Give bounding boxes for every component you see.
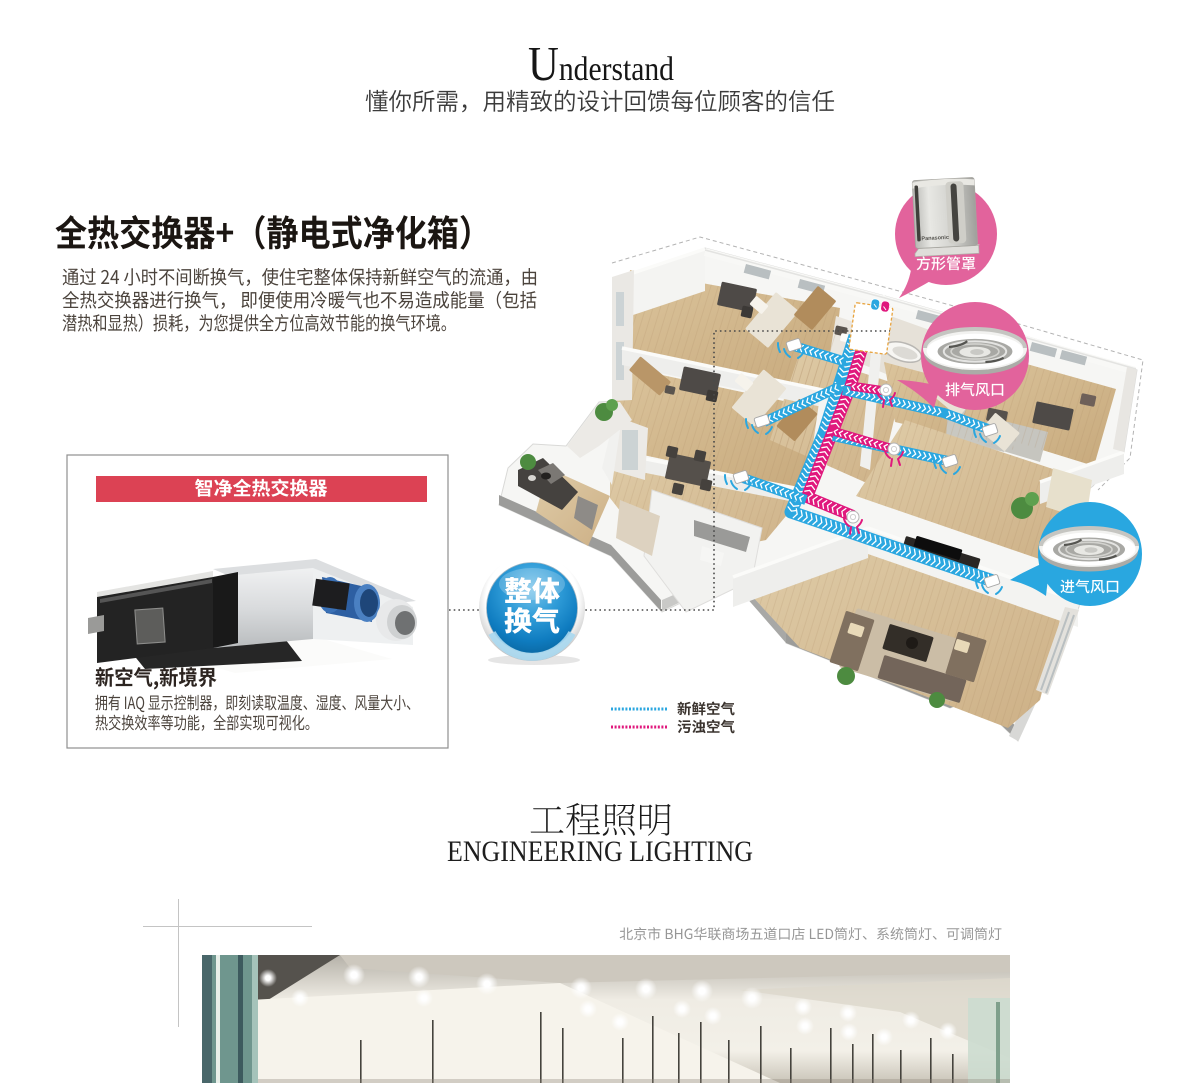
- svg-text:ENGINEERING LIGHTING: ENGINEERING LIGHTING: [447, 835, 753, 868]
- svg-text:Understand: Understand: [528, 36, 674, 91]
